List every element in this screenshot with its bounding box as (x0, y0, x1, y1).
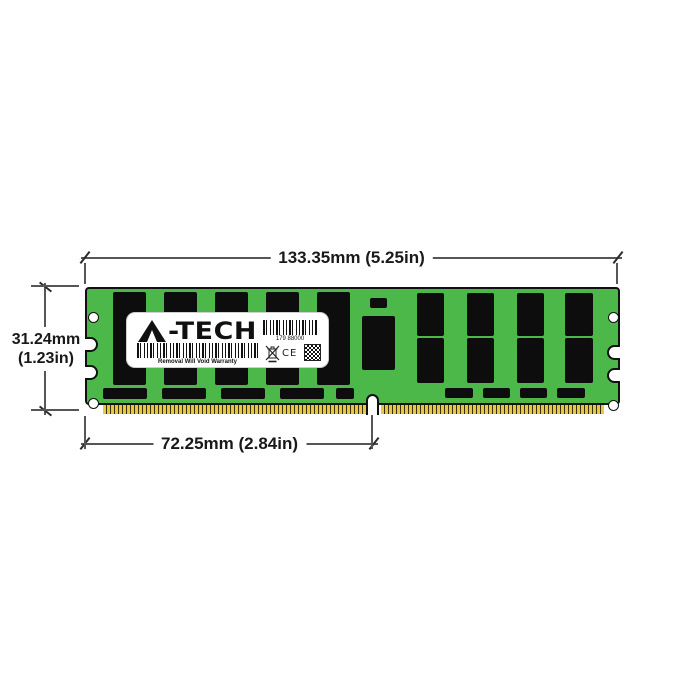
ce-mark: CE (282, 348, 297, 359)
height-dimension-label: 31.24mm (1.23in) (9, 327, 84, 371)
width-dimension-label: 133.35mm (5.25in) (270, 247, 432, 268)
serial-number: 179 88000 (263, 336, 317, 342)
compliance-symbols: CE (265, 344, 323, 363)
warranty-text: Removal Will Void Warranty (137, 359, 258, 365)
memory-module-dimension-diagram: 133.35mm (5.25in) 31.24mm (1.23in) -TECH… (0, 0, 700, 700)
extension-line (371, 414, 373, 449)
height-dimension: 31.24mm (1.23in) (38, 287, 54, 411)
mounting-hole (88, 398, 99, 409)
product-label: -TECH 179 88000 Removal Will Void Warran… (127, 313, 328, 367)
pin-offset-dimension: 72.25mm (2.84in) (85, 436, 374, 452)
extension-line (84, 263, 86, 284)
brand-logo-text: -TECH (168, 317, 257, 345)
pin-offset-dimension-text: 72.25mm (2.84in) (153, 434, 306, 453)
mounting-hole (608, 400, 619, 411)
brand-logo-triangle-icon (138, 320, 166, 342)
memory-module: -TECH 179 88000 Removal Will Void Warran… (85, 287, 620, 414)
mounting-hole (88, 312, 99, 323)
extension-line (31, 409, 79, 411)
mounting-hole (608, 312, 619, 323)
width-dimension-text: 133.35mm (5.25in) (270, 248, 432, 267)
height-dimension-text-in: (1.23in) (12, 349, 81, 368)
extension-line (31, 285, 79, 287)
pin-offset-dimension-label: 72.25mm (2.84in) (153, 433, 306, 454)
weee-bin-icon (265, 344, 280, 363)
extension-line (84, 416, 86, 449)
extension-line (616, 263, 618, 284)
width-dimension: 133.35mm (5.25in) (85, 250, 618, 266)
warranty-barcode-icon (137, 343, 258, 358)
serial-barcode-icon (263, 320, 317, 335)
height-dimension-text-mm: 31.24mm (12, 330, 81, 349)
qr-code-icon (305, 345, 320, 360)
